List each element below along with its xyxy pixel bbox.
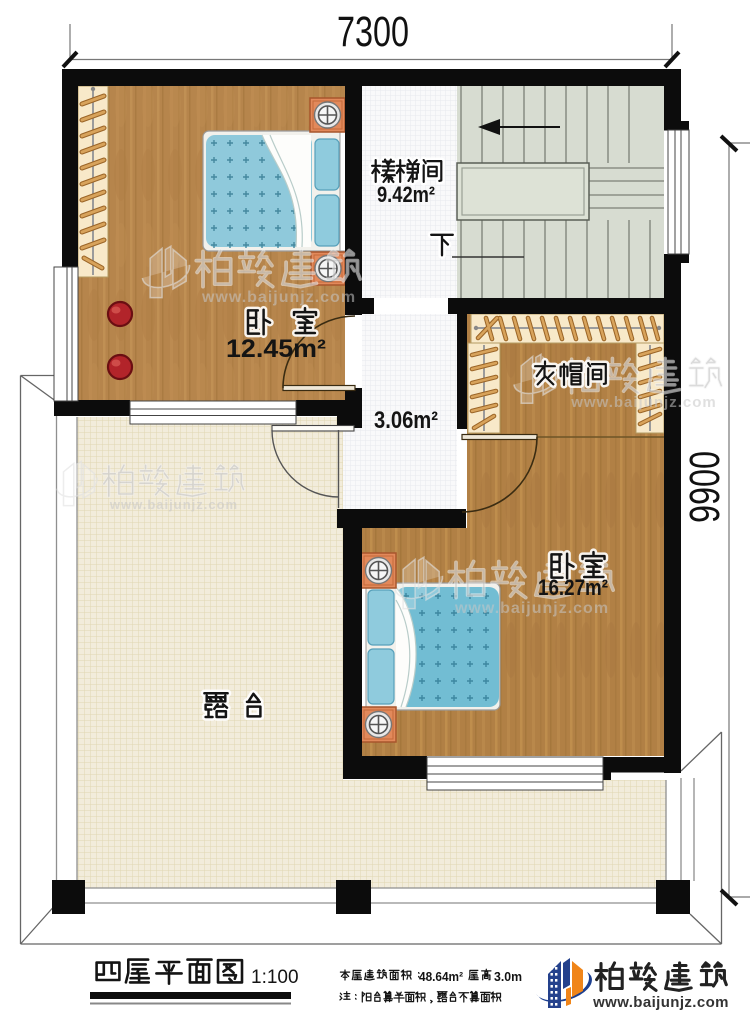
svg-text:www.baijunjz.com: www.baijunjz.com: [109, 497, 238, 512]
svg-text:www.baijunjz.com: www.baijunjz.com: [592, 994, 729, 1011]
svg-text:www.baijunjz.com: www.baijunjz.com: [570, 394, 716, 411]
svg-text:12.45m²: 12.45m²: [226, 335, 326, 363]
svg-text:www.baijunjz.com: www.baijunjz.com: [201, 289, 356, 306]
svg-text:48.64m²: 48.64m²: [419, 969, 464, 984]
svg-text:9.42m²: 9.42m²: [377, 182, 435, 207]
svg-text:1:100: 1:100: [251, 967, 299, 988]
svg-text:3.0m: 3.0m: [494, 969, 522, 984]
svg-text:www.baijunjz.com: www.baijunjz.com: [454, 600, 609, 617]
svg-text:7300: 7300: [337, 8, 409, 56]
svg-text:9900: 9900: [681, 451, 729, 523]
svg-text:3.06m²: 3.06m²: [374, 407, 438, 434]
svg-text:16.27m²: 16.27m²: [538, 575, 608, 600]
